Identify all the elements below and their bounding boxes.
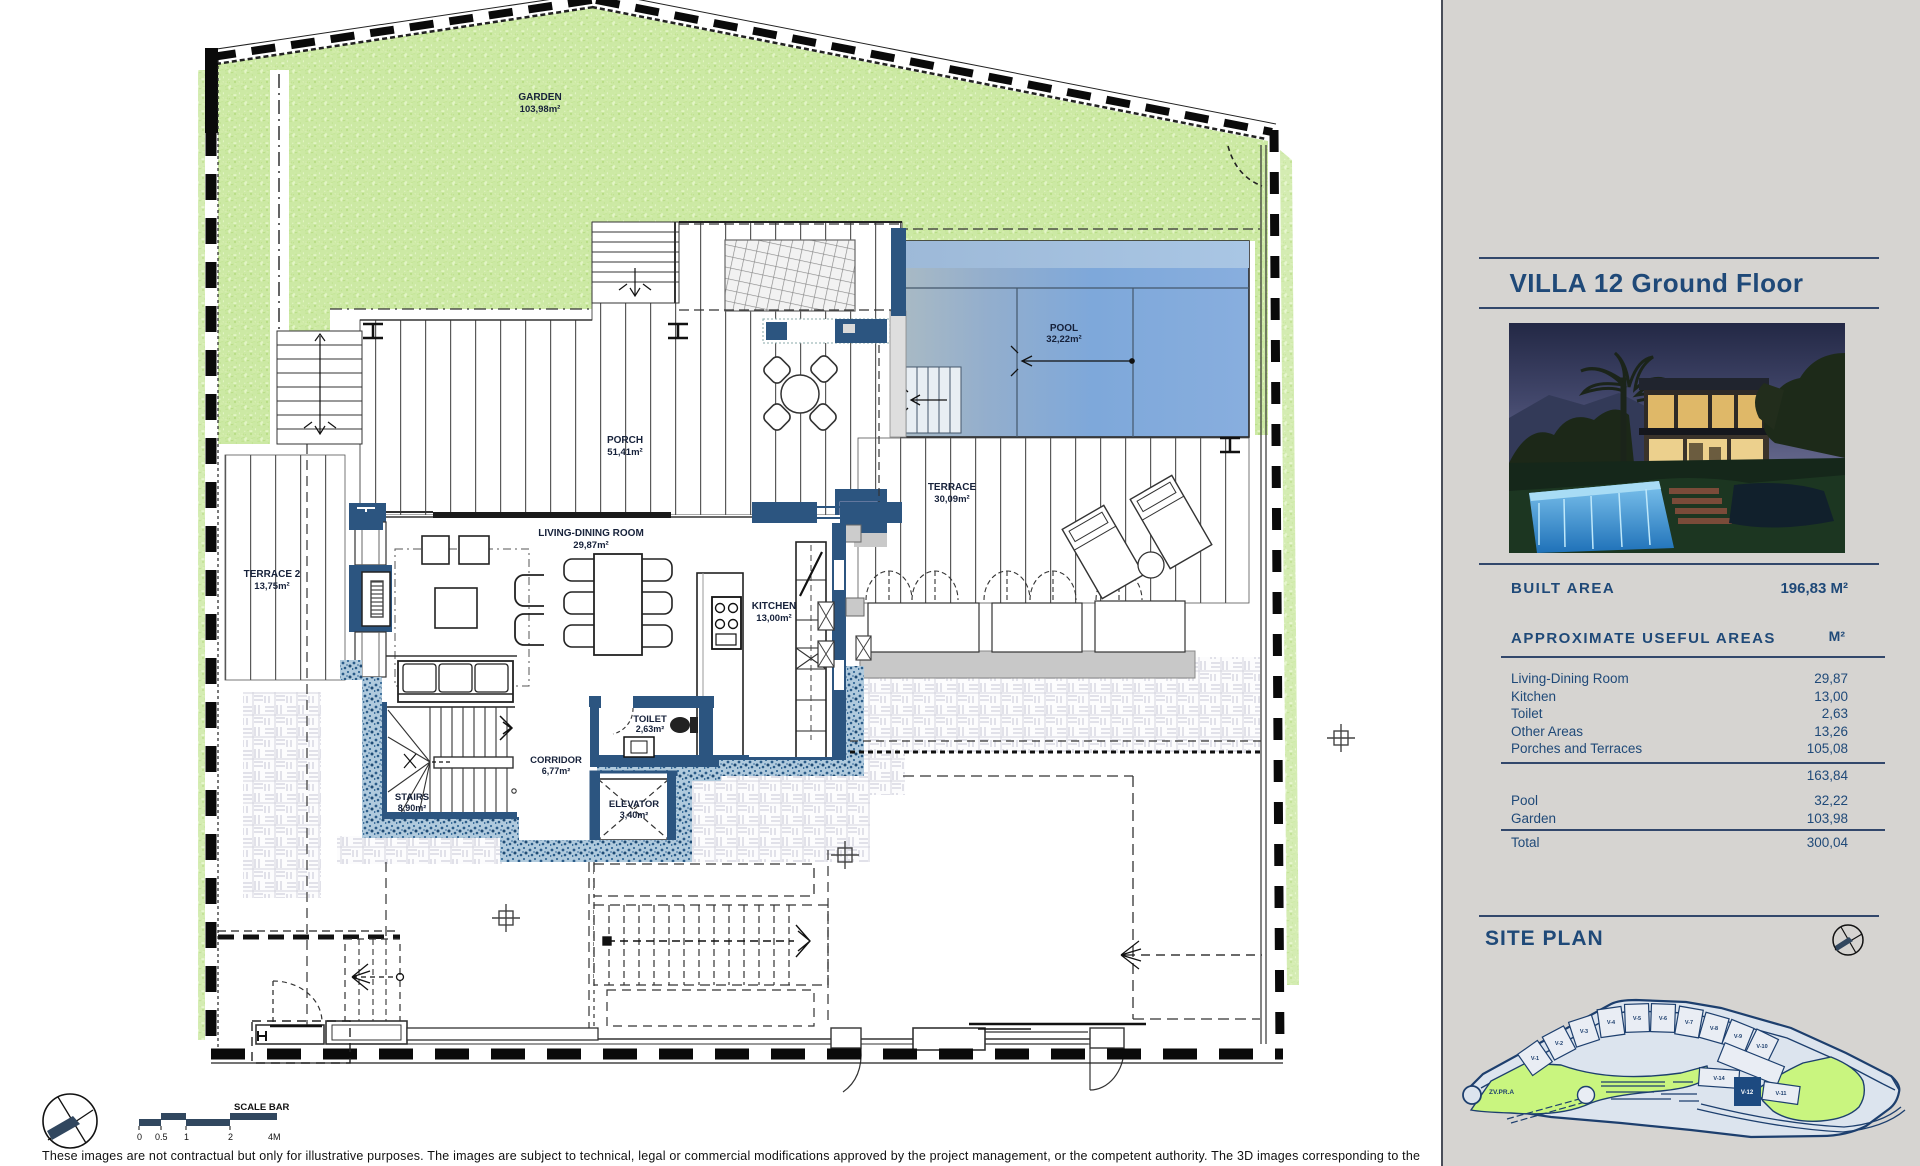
svg-text:TERRACE: TERRACE	[928, 482, 977, 493]
svg-text:V-12: V-12	[1741, 1090, 1754, 1096]
svg-text:V-14: V-14	[1713, 1076, 1725, 1082]
svg-text:LIVING-DINING ROOM: LIVING-DINING ROOM	[538, 528, 644, 539]
svg-text:V-4: V-4	[1607, 1020, 1616, 1026]
svg-text:KITCHEN: KITCHEN	[752, 601, 796, 612]
svg-text:8,90m²: 8,90m²	[398, 803, 427, 813]
svg-text:51,41m²: 51,41m²	[607, 447, 642, 458]
svg-text:V-11: V-11	[1775, 1091, 1786, 1097]
svg-text:V-6: V-6	[1659, 1016, 1667, 1022]
svg-text:3,40m²: 3,40m²	[620, 810, 649, 820]
svg-text:0.5: 0.5	[155, 1132, 168, 1142]
svg-text:6,77m²: 6,77m²	[542, 766, 571, 776]
svg-text:STAIRS: STAIRS	[395, 792, 429, 803]
svg-text:32,22m²: 32,22m²	[1046, 334, 1081, 345]
svg-text:V-9: V-9	[1734, 1034, 1742, 1040]
svg-text:0: 0	[137, 1132, 142, 1142]
svg-text:103,98m²: 103,98m²	[520, 104, 561, 115]
svg-text:2: 2	[228, 1132, 233, 1142]
svg-text:4M: 4M	[268, 1132, 281, 1142]
svg-text:V-3: V-3	[1580, 1029, 1588, 1035]
svg-text:1: 1	[184, 1132, 189, 1142]
svg-text:13,75m²: 13,75m²	[254, 581, 289, 592]
svg-text:30,09m²: 30,09m²	[934, 494, 969, 505]
svg-text:29,87m²: 29,87m²	[573, 540, 608, 551]
svg-text:13,00m²: 13,00m²	[756, 613, 791, 624]
svg-text:V-7: V-7	[1685, 1020, 1693, 1026]
svg-text:POOL: POOL	[1050, 323, 1078, 334]
svg-text:SCALE BAR: SCALE BAR	[234, 1102, 290, 1113]
svg-text:2,63m²: 2,63m²	[636, 724, 665, 734]
svg-text:ELEVATOR: ELEVATOR	[609, 799, 659, 810]
svg-text:ZV.PR.A: ZV.PR.A	[1489, 1089, 1514, 1096]
svg-text:V-5: V-5	[1633, 1016, 1641, 1022]
svg-text:V-8: V-8	[1710, 1026, 1718, 1032]
svg-text:TERRACE 2: TERRACE 2	[244, 569, 301, 580]
svg-text:PORCH: PORCH	[607, 435, 643, 446]
svg-text:V-10: V-10	[1756, 1044, 1767, 1050]
svg-text:V-1: V-1	[1531, 1056, 1539, 1062]
svg-text:V-2: V-2	[1555, 1041, 1563, 1047]
svg-text:GARDEN: GARDEN	[518, 92, 561, 103]
svg-text:CORRIDOR: CORRIDOR	[530, 755, 582, 766]
